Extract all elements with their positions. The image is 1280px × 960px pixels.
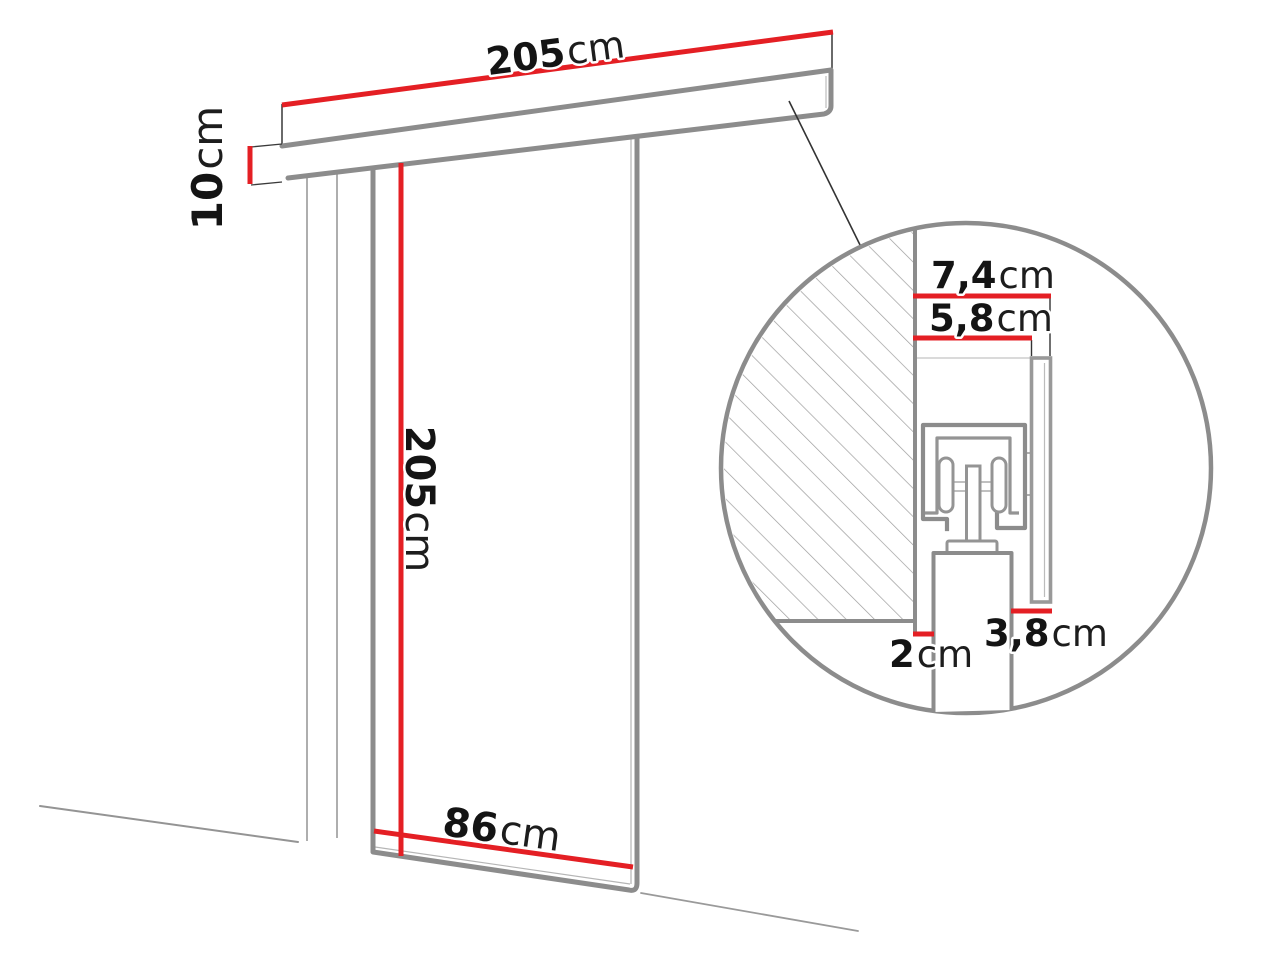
wall-jamb <box>307 172 337 841</box>
floor-line-right <box>641 893 858 931</box>
roller-wheel-right <box>992 458 1006 512</box>
label-wall-gap-unit: cm <box>917 633 973 676</box>
label-wall-gap: 2cm <box>889 633 973 676</box>
label-total-depth-value: 7,4 <box>931 254 997 297</box>
label-total-depth-unit: cm <box>999 254 1055 297</box>
roller-wheel-left <box>939 458 953 512</box>
wall-hatch-area <box>714 219 916 622</box>
hanger-stem <box>967 466 981 544</box>
label-door-offset-unit: cm <box>1052 612 1108 655</box>
wall-hatch <box>714 219 916 622</box>
label-door-offset-value: 3,8 <box>984 612 1050 655</box>
label-track-depth-value: 5,8 <box>929 297 995 340</box>
fascia-section <box>1032 358 1051 602</box>
label-track-height-unit: cm <box>183 106 232 170</box>
detail-pointer-line <box>789 101 864 253</box>
label-door-height-value: 205 <box>396 426 442 510</box>
label-track-height: 10cm <box>183 106 232 230</box>
label-door-height-unit: cm <box>396 511 442 572</box>
label-track-depth-unit: cm <box>997 297 1053 340</box>
label-door-offset: 3,8cm <box>984 612 1108 655</box>
floor-line-left <box>40 806 298 842</box>
label-door-width-value: 86 <box>440 799 501 852</box>
label-total-depth: 7,4cm <box>931 254 1055 297</box>
label-track-length-unit: cm <box>564 22 627 73</box>
label-track-depth: 5,8cm <box>929 297 1053 340</box>
label-wall-gap-value: 2 <box>889 633 915 676</box>
track-end-face <box>251 144 282 185</box>
diagram-canvas: 205cm 10cm 205cm 86cm 7,4cm 5,8cm 2cm 3,… <box>0 0 1280 960</box>
label-door-width-unit: cm <box>497 807 564 861</box>
label-door-height: 205cm <box>396 426 442 572</box>
label-track-height-value: 10 <box>183 172 232 230</box>
